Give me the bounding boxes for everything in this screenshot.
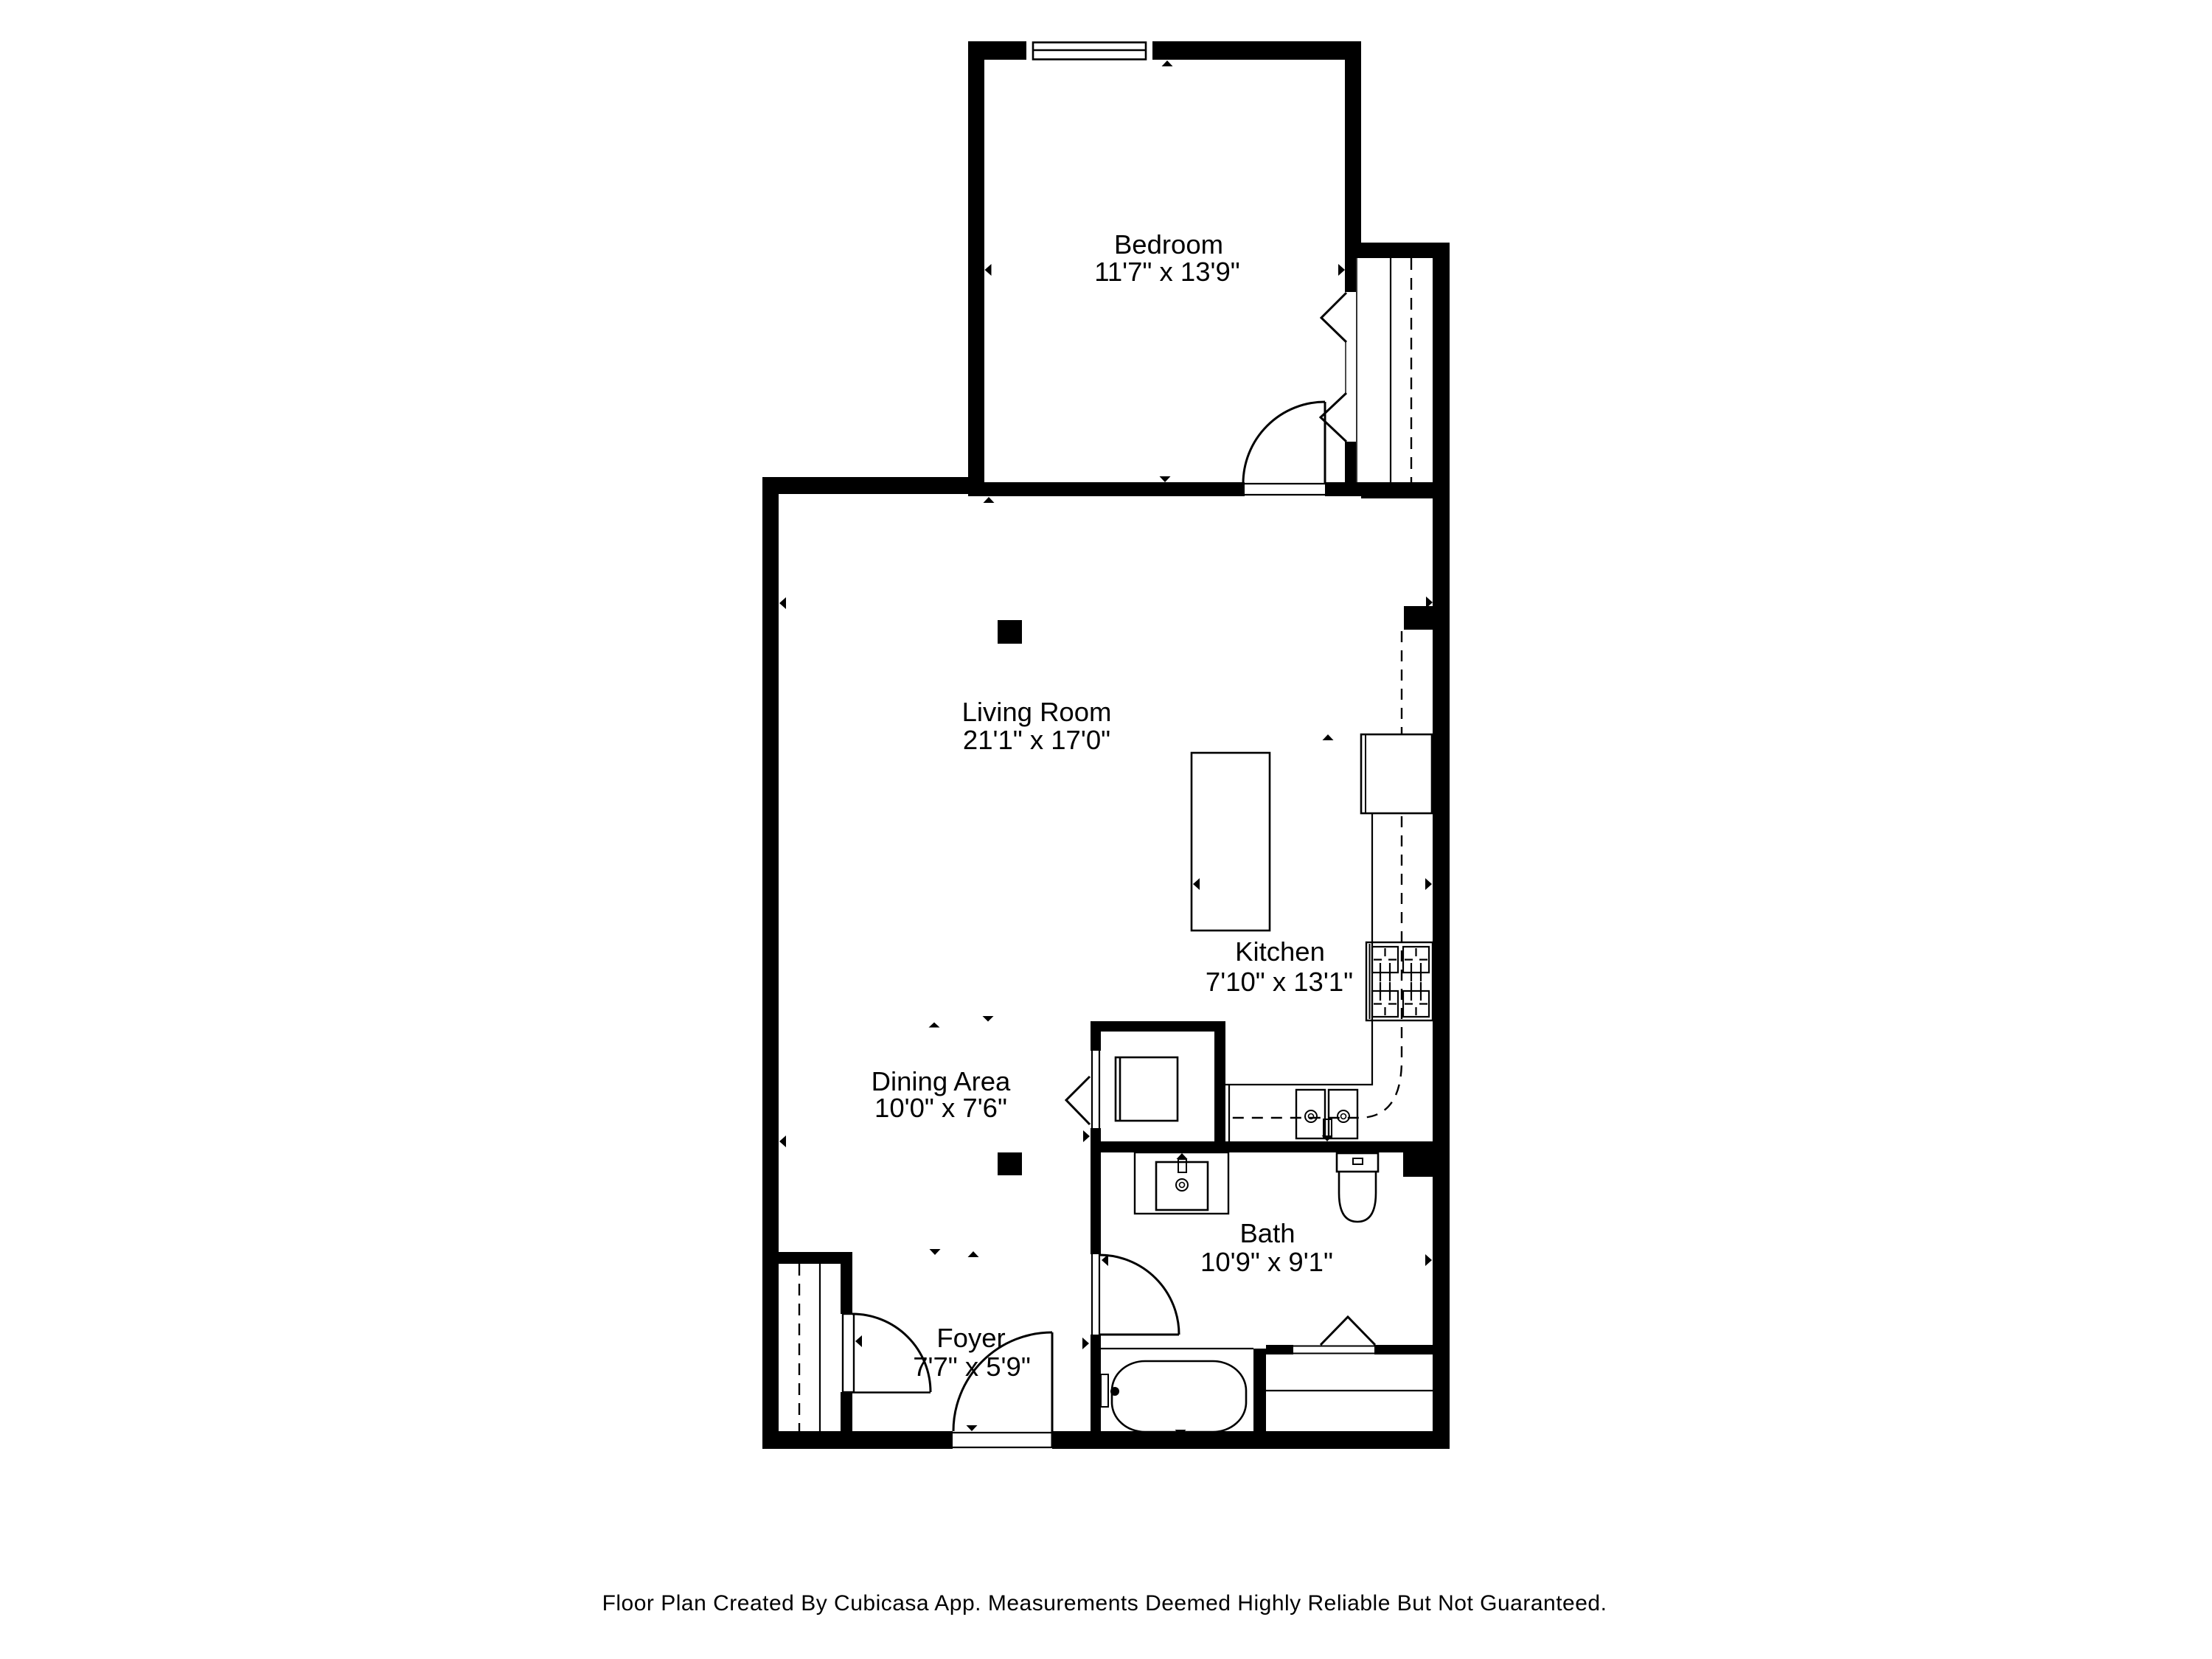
svg-text:7'10" x 13'1": 7'10" x 13'1" — [1206, 967, 1353, 997]
svg-text:10'0" x 7'6": 10'0" x 7'6" — [874, 1093, 1007, 1123]
svg-text:10'9" x 9'1": 10'9" x 9'1" — [1200, 1247, 1333, 1277]
svg-text:Bedroom: Bedroom — [1114, 229, 1223, 260]
svg-text:Bath: Bath — [1239, 1218, 1295, 1248]
svg-text:7'7" x 5'9": 7'7" x 5'9" — [913, 1352, 1031, 1382]
svg-text:11'7" x 13'9": 11'7" x 13'9" — [1094, 257, 1239, 287]
svg-text:Kitchen: Kitchen — [1235, 936, 1325, 967]
svg-text:Dining Area: Dining Area — [872, 1066, 1011, 1096]
svg-text:Living Room: Living Room — [962, 697, 1112, 727]
svg-text:Foyer: Foyer — [936, 1323, 1005, 1353]
svg-text:21'1" x 17'0": 21'1" x 17'0" — [963, 725, 1110, 755]
svg-text:Floor Plan Created By Cubicasa: Floor Plan Created By Cubicasa App. Meas… — [602, 1591, 1607, 1615]
